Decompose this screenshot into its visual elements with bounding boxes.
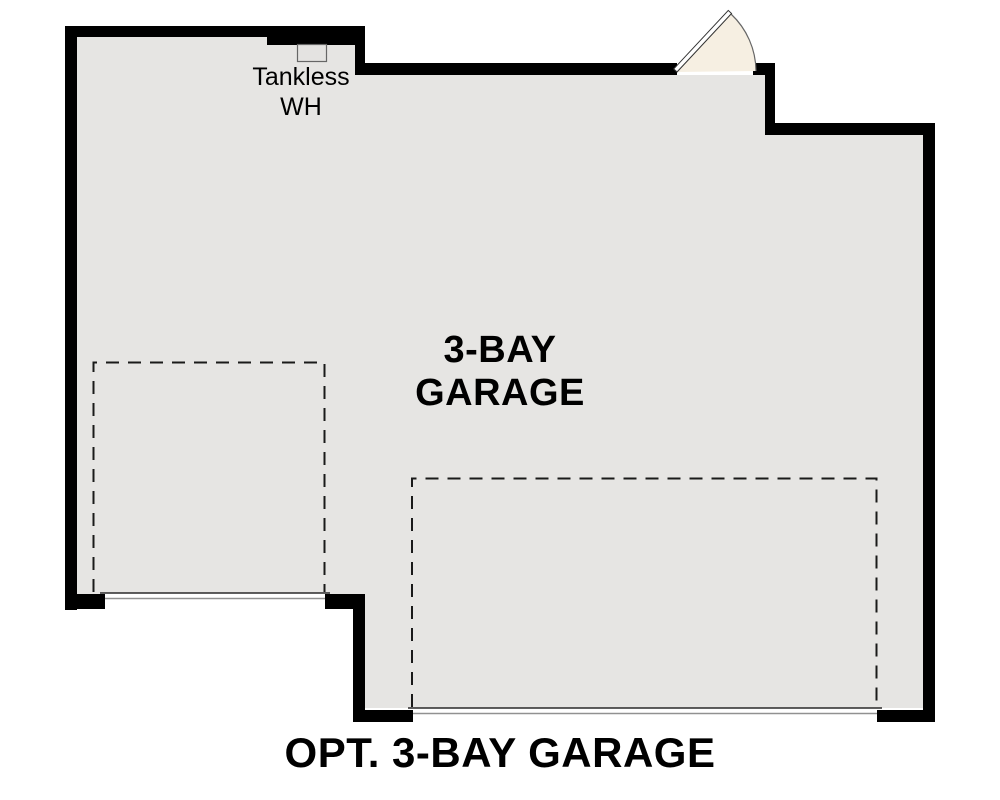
wall-top-left [65, 26, 365, 37]
wall-left [65, 26, 77, 610]
tankless-wh-label-line1: Tankless [252, 62, 349, 92]
wall-bay-step-vertical [353, 594, 365, 722]
tankless-wh-label: Tankless WH [252, 62, 349, 122]
door-swing-icon [674, 10, 756, 72]
room-name-line2: GARAGE [415, 372, 585, 415]
tankless-water-heater-box [298, 45, 327, 62]
wall-right [923, 123, 935, 722]
room-name-label: 3-BAY GARAGE [415, 329, 585, 415]
wall-upper-right-horizontal [765, 123, 935, 135]
wall-wh-niche-bump [267, 36, 355, 45]
room-name-line1: 3-BAY [415, 329, 585, 372]
wall-bottom-right [877, 710, 935, 722]
wall-top-step [355, 26, 365, 75]
plan-title: OPT. 3-BAY GARAGE [285, 730, 716, 776]
wall-left-bay-right-stub [325, 594, 365, 609]
floor-plan: Tankless WH 3-BAY GARAGE OPT. 3-BAY GARA… [0, 0, 1000, 800]
tankless-wh-label-line2: WH [252, 92, 349, 122]
wall-top-right [365, 63, 677, 75]
